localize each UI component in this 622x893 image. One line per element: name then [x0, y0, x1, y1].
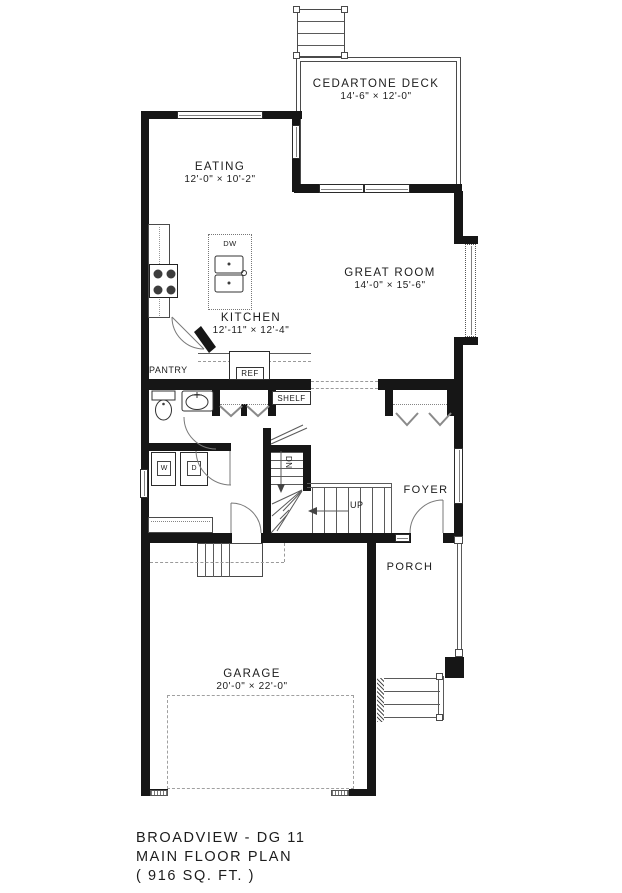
room-label-great-room: GREAT ROOM 14'-0" × 15'-6" — [310, 266, 470, 293]
garage-entry-door-arc — [231, 503, 261, 533]
bifold-door-chevron — [220, 406, 242, 416]
plan-area: ( 916 SQ. FT. ) — [136, 868, 255, 884]
bifold-door-chevron — [247, 406, 269, 416]
up-label: UP — [350, 500, 364, 510]
laundry-door-arc — [196, 451, 231, 485]
plan-title: BROADVIEW - DG 11 — [136, 830, 306, 846]
up-arrow-head — [308, 507, 317, 515]
sink-drain — [228, 263, 231, 266]
burner — [154, 286, 163, 295]
burner — [167, 270, 176, 279]
burner — [154, 270, 163, 279]
floor-plan: REF SHELF W D — [0, 0, 622, 893]
room-label-pantry: PANTRY — [149, 365, 188, 375]
room-label-foyer: FOYER — [386, 484, 466, 498]
bifold-door-chevron — [429, 413, 451, 425]
stair-guard-diagonal — [271, 425, 307, 444]
room-label-kitchen: KITCHEN 12'-11" × 12'-4" — [171, 311, 331, 338]
room-label-deck: CEDARTONE DECK 14'-6" × 12'-0" — [295, 77, 457, 104]
plan-linework — [0, 0, 622, 893]
plan-subtitle: MAIN FLOOR PLAN — [136, 849, 292, 865]
room-label-garage: GARAGE 20'-0" × 22'-0" — [172, 667, 332, 694]
toilet-flush — [162, 403, 165, 406]
front-door-arc — [410, 500, 443, 533]
powder-door-arc — [184, 417, 216, 449]
room-label-eating: EATING 12'-0" × 10'-2" — [147, 160, 293, 187]
dw-label: DW — [208, 239, 252, 248]
bifold-door-chevron — [396, 413, 418, 425]
burner — [167, 286, 176, 295]
toilet-tank — [152, 391, 175, 400]
room-label-porch: PORCH — [370, 561, 450, 575]
dn-label: DN — [284, 456, 293, 469]
dn-arrow-head — [277, 484, 285, 493]
sink-drain — [228, 282, 231, 285]
